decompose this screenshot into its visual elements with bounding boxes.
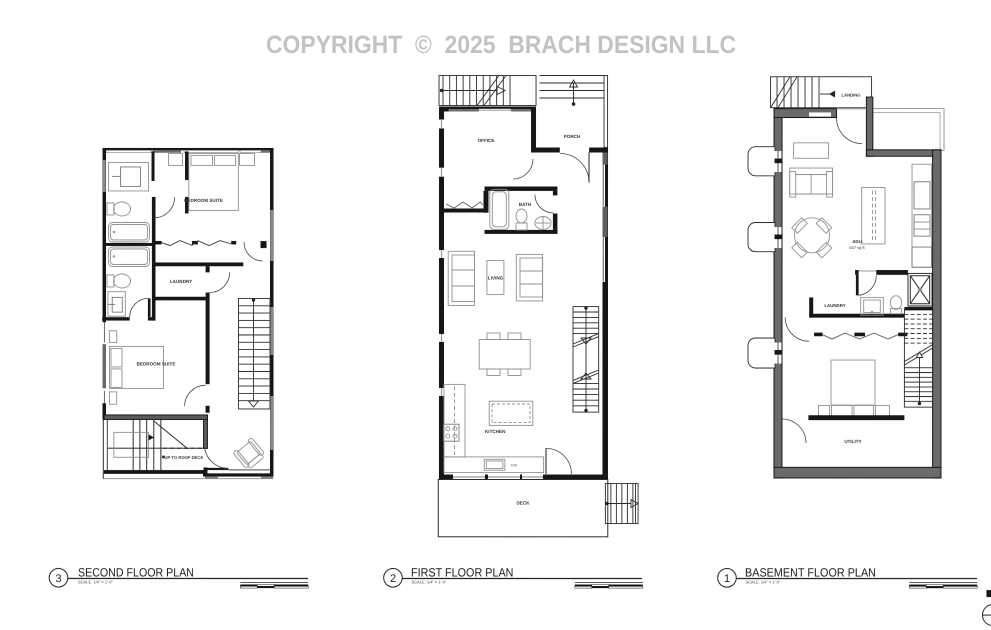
svg-text:DECK: DECK [516,501,530,506]
svg-text:SCALE: 1/4" = 1'-0": SCALE: 1/4" = 1'-0" [78,579,113,584]
svg-text:LAUNDRY: LAUNDRY [170,279,192,284]
svg-text:2: 2 [390,573,396,585]
svg-text:DW: DW [511,464,518,468]
svg-text:PORCH: PORCH [564,134,581,139]
svg-text:KITCHEN: KITCHEN [485,429,506,434]
svg-text:LIVING: LIVING [488,275,504,280]
svg-text:OFFICE: OFFICE [478,138,495,143]
svg-text:SCALE: 1/4" = 1'-0": SCALE: 1/4" = 1'-0" [411,579,446,584]
svg-text:BATH: BATH [519,202,532,207]
svg-text:UP TO ROOF DECK: UP TO ROOF DECK [165,455,204,460]
svg-text:647 sq ft: 647 sq ft [849,245,865,250]
svg-text:1: 1 [724,573,730,585]
svg-text:LAUNDRY: LAUNDRY [824,303,845,308]
svg-text:FIRST FLOOR PLAN: FIRST FLOOR PLAN [411,565,514,579]
svg-text:SECOND FLOOR PLAN: SECOND FLOOR PLAN [78,565,194,579]
svg-text:BEDROOM SUITE: BEDROOM SUITE [184,198,223,203]
svg-text:ADU: ADU [852,239,862,244]
svg-text:LANDING: LANDING [841,93,860,98]
svg-text:SCALE: 1/4" = 1'-0": SCALE: 1/4" = 1'-0" [745,580,780,585]
svg-text:UTILITY: UTILITY [844,439,861,444]
svg-text:COPYRIGHT © 2025 BRACH DESI: COPYRIGHT © 2025 BRACH DESIGN LLC [266,31,736,59]
svg-text:3: 3 [55,573,61,585]
svg-text:BASEMENT FLOOR PLAN: BASEMENT FLOOR PLAN [745,565,876,579]
svg-text:BEDROOM SUITE: BEDROOM SUITE [137,361,176,366]
